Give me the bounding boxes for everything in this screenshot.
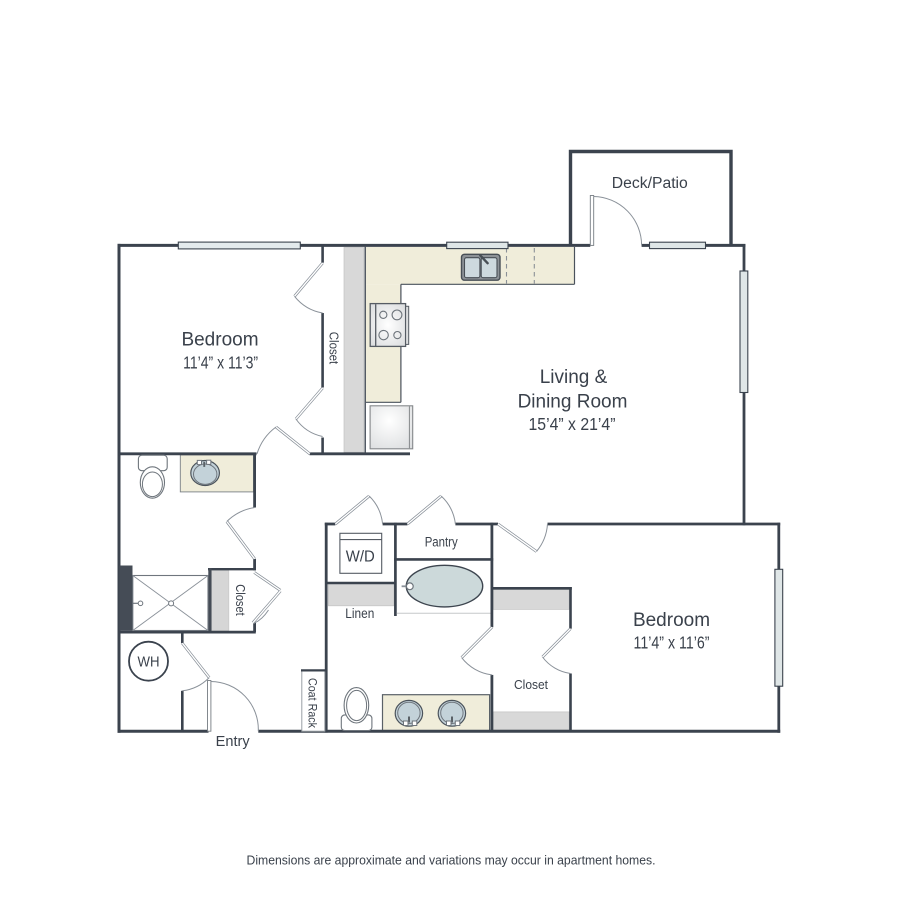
svg-text:Pantry: Pantry [425,534,458,549]
svg-text:11’4” x 11’6”: 11’4” x 11’6” [634,633,710,653]
svg-text:Deck/Patio: Deck/Patio [612,175,688,192]
svg-text:Bedroom: Bedroom [633,610,710,631]
svg-text:WH: WH [138,653,160,670]
svg-text:11’4” x 11’3”: 11’4” x 11’3” [183,352,258,372]
svg-text:Entry: Entry [216,734,251,750]
svg-text:Coat Rack: Coat Rack [306,678,320,729]
svg-text:Living &: Living & [540,367,608,388]
svg-text:Dimensions are approximate and: Dimensions are approximate and variation… [247,853,656,867]
svg-text:Bedroom: Bedroom [181,330,258,351]
svg-text:15’4” x 21’4”: 15’4” x 21’4” [529,414,616,434]
svg-text:Dining Room: Dining Room [518,391,628,412]
svg-text:Closet: Closet [327,332,341,365]
svg-text:Linen: Linen [345,606,374,621]
svg-text:Closet: Closet [233,584,247,616]
svg-text:Closet: Closet [514,677,548,692]
svg-text:W/D: W/D [346,549,375,566]
